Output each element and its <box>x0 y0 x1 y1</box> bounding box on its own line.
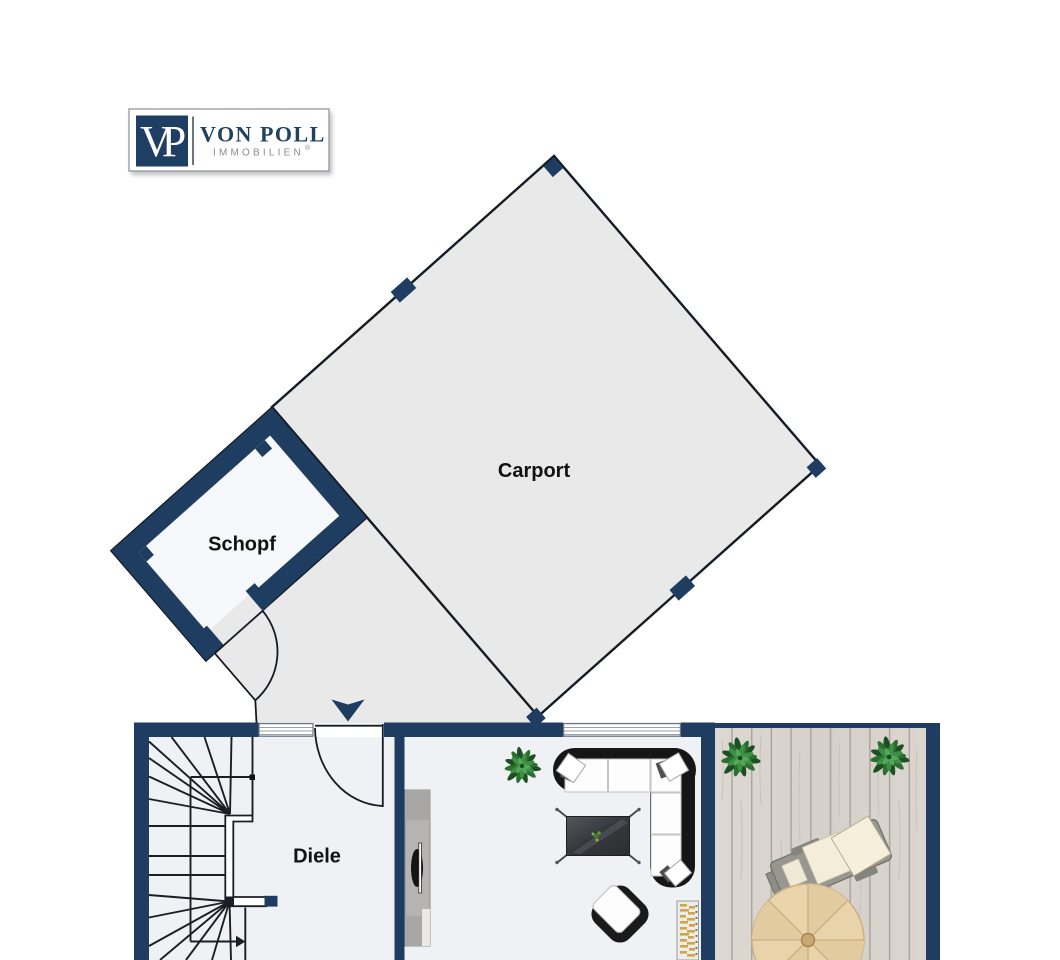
svg-text:Schopf: Schopf <box>208 534 276 556</box>
svg-text:Carport: Carport <box>498 460 571 482</box>
svg-text:VON POLL: VON POLL <box>200 122 326 147</box>
svg-text:®: ® <box>305 144 311 152</box>
svg-text:Diele: Diele <box>293 846 341 868</box>
svg-text:IMMOBILIEN: IMMOBILIEN <box>213 148 304 159</box>
